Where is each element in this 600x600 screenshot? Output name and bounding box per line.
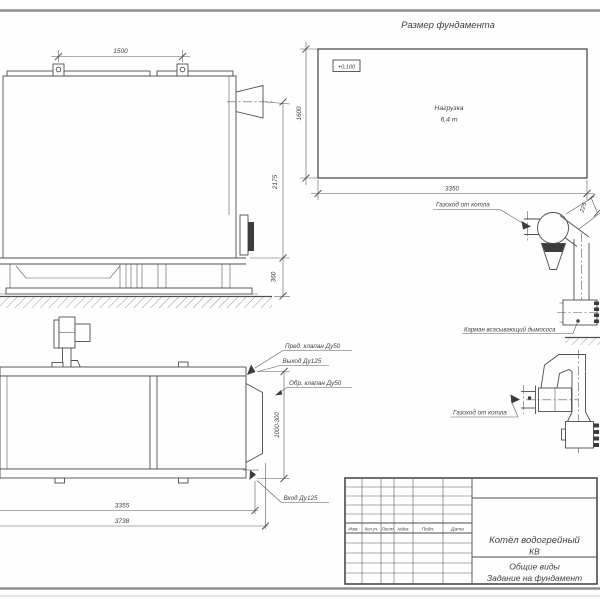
flue-detail-lower: Газоход от котла [451, 350, 600, 453]
dim-360: 360 [271, 271, 278, 282]
lifting-lug [53, 64, 64, 76]
dim-3350: 3350 [445, 186, 460, 193]
foundation-plan: Размер фундамента +0,100 Нагрузка 6,4 т … [296, 20, 594, 200]
ground-hatching [0, 297, 272, 309]
boiler-plan-view: Пред. клапан Ду50 Выход Ду125 Обр. клапа… [0, 317, 352, 530]
boiler-body-plan [0, 376, 246, 469]
doc-type-line1: Общие виды [509, 562, 560, 572]
boiler-drawing: 1500 [0, 0, 600, 600]
flue-from-boiler-label: Газоход от котла [436, 201, 490, 209]
product-model: КВ [529, 547, 540, 557]
ground-hatching [565, 338, 600, 346]
col-data: Дата [450, 527, 464, 533]
dim-2175: 2175 [272, 174, 279, 190]
dim-1000-300: 1000-300 [275, 412, 281, 438]
flanged-duct-box [526, 386, 578, 415]
dim-1500: 1500 [113, 48, 128, 55]
label-inlet: Вход Ду125 [243, 470, 329, 503]
safety-valve-label: Пред. клапан Ду50 [285, 342, 341, 350]
inlet-label: Вход Ду125 [284, 494, 318, 502]
cyclone-scroll [538, 213, 569, 244]
load-value: 6,4 т [441, 117, 458, 124]
doc-type-line2: Задание на фундамент [487, 573, 582, 583]
dim-lug-spacing: 1500 [51, 48, 190, 62]
dim-1600: 1600 [296, 106, 303, 121]
title-block: Изм. Кол.уч. Лист №док. Подп. Дата Котёл… [345, 478, 597, 584]
boiler-side-view: 1500 [0, 48, 290, 308]
level-mark-value: +0,100 [338, 65, 356, 71]
label-check-valve: Обр. клапан Ду50 [275, 379, 352, 396]
col-podp: Подп. [422, 527, 435, 533]
rear-cap [246, 384, 263, 463]
dim-height: 2175 360 [250, 99, 290, 300]
col-ndok: №док. [397, 527, 409, 532]
dim-length-inner: 3355 [0, 481, 259, 514]
flue-detail-upper: Газоход от котла Карман всасывающий дымо… [433, 194, 600, 345]
dim-3738: 3738 [115, 518, 130, 525]
dim-3355: 3355 [115, 503, 130, 510]
smoke-exhauster [562, 422, 600, 449]
outlet-label: Выход Ду125 [283, 357, 322, 365]
col-koluch: Кол.уч. [365, 527, 379, 532]
inlet-stub [250, 470, 257, 480]
product-name: Котёл водогрейный [489, 535, 580, 546]
flue-from-boiler-label: Газоход от котла [453, 409, 507, 417]
dim-foundation-width: 3350 [311, 180, 594, 200]
load-label: Нагрузка [434, 105, 463, 112]
foundation-title: Размер фундамента [401, 20, 495, 31]
col-izm: Изм. [348, 527, 358, 533]
drawing-canvas: 1500 [0, 0, 600, 600]
suction-pocket-label: Карман всасывающий дымососа [464, 327, 556, 334]
level-mark: +0,100 [333, 60, 360, 72]
check-valve-label: Обр. клапан Ду50 [289, 379, 342, 387]
leader-arrow [522, 221, 532, 230]
col-list: Лист [380, 527, 393, 533]
burner-assembly [52, 317, 90, 369]
lifting-lug [177, 64, 188, 76]
dim-225: 225 [579, 201, 588, 214]
side-fitting [240, 215, 254, 255]
boiler-body [3, 76, 236, 258]
dim-foundation-height: 1600 [296, 42, 318, 185]
outlet-stub [247, 365, 256, 376]
base-frame [0, 258, 258, 294]
